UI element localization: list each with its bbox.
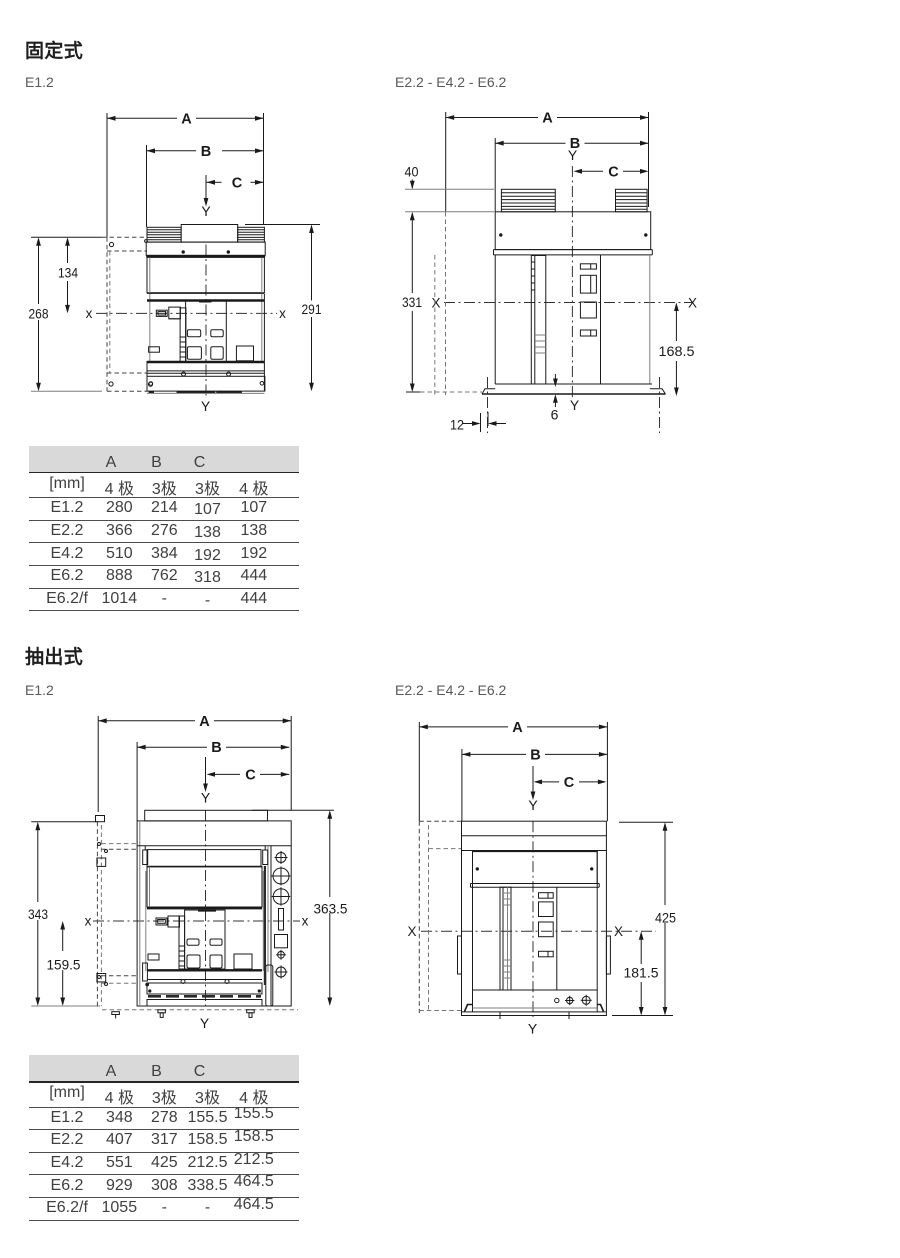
svg-text:X: X xyxy=(614,924,623,939)
svg-text:Y: Y xyxy=(528,1021,538,1037)
svg-text:A: A xyxy=(512,720,523,736)
svg-text:Y: Y xyxy=(528,797,538,813)
svg-text:B: B xyxy=(530,747,540,763)
svg-text:425: 425 xyxy=(655,910,676,926)
svg-text:181.5: 181.5 xyxy=(624,965,659,981)
svg-text:X: X xyxy=(407,924,416,939)
svg-text:C: C xyxy=(564,775,575,791)
